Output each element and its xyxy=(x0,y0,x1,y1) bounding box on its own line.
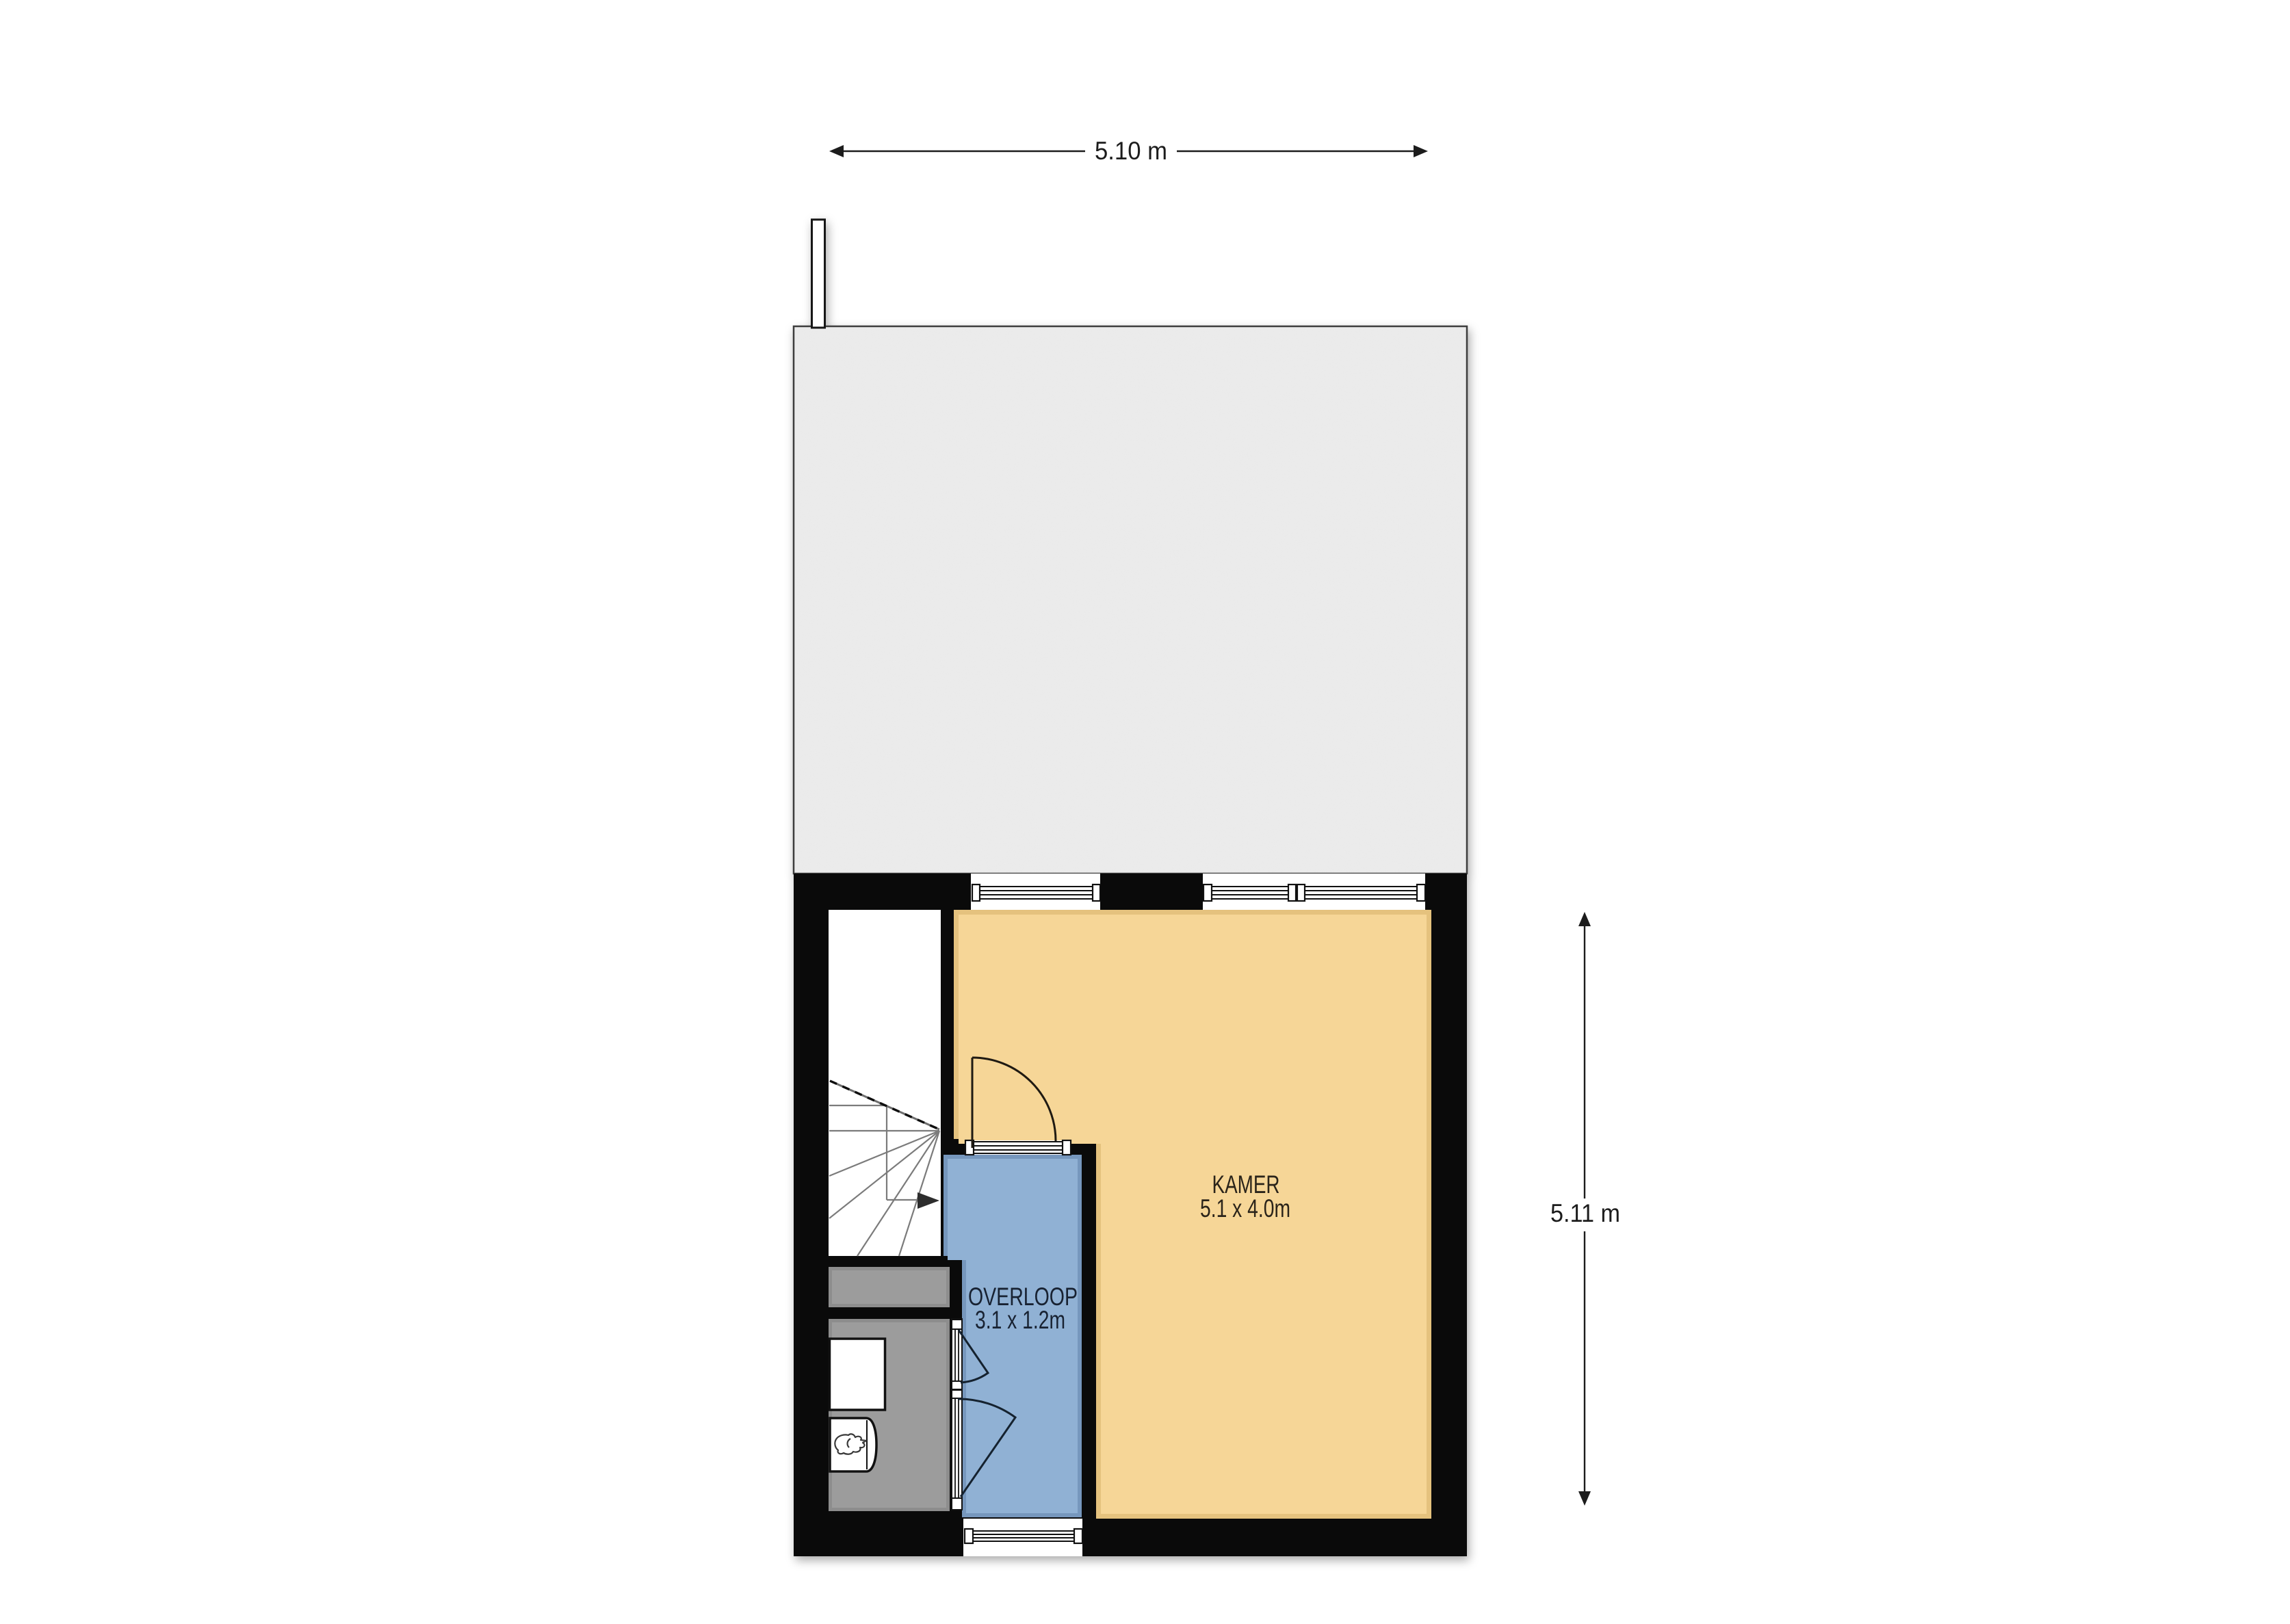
svg-text:5.1 x 4.0m: 5.1 x 4.0m xyxy=(1200,1194,1290,1222)
svg-text:3.1 x 1.2m: 3.1 x 1.2m xyxy=(975,1306,1065,1334)
svg-text:5.10 m: 5.10 m xyxy=(1095,137,1167,165)
svg-text:5.11 m: 5.11 m xyxy=(1550,1199,1620,1227)
